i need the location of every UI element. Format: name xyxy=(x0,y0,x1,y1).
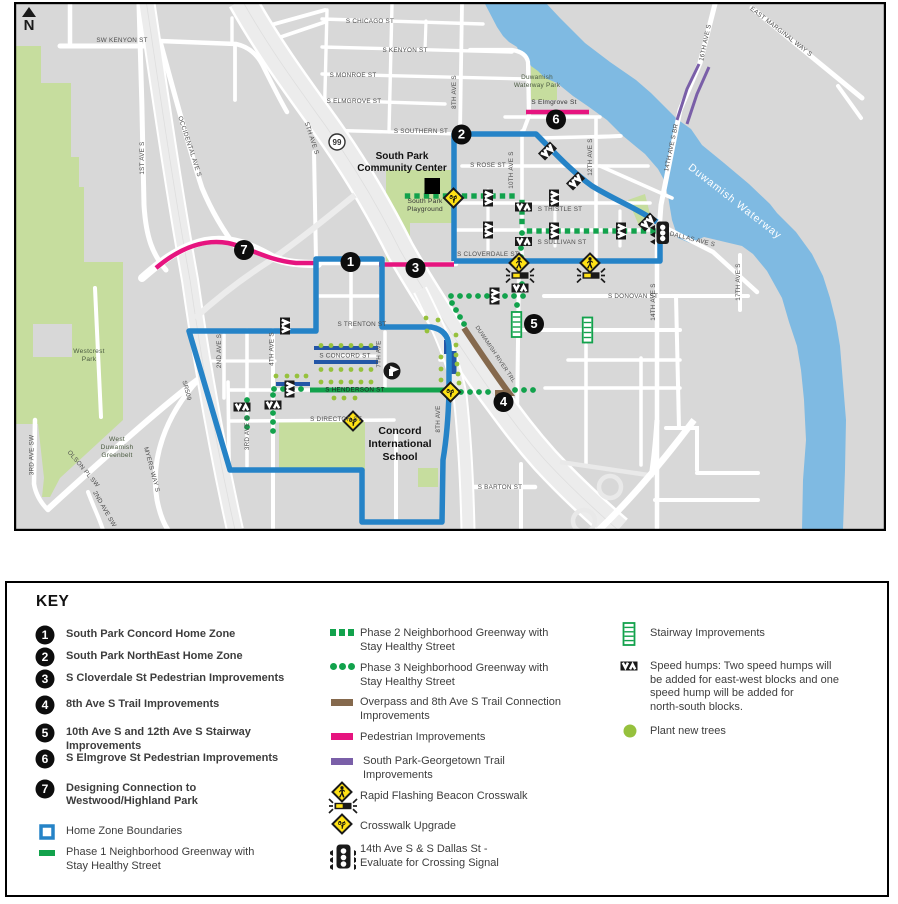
svg-text:3: 3 xyxy=(412,260,419,275)
svg-text:Duwamish: Duwamish xyxy=(521,74,553,81)
svg-text:S TRENTON ST: S TRENTON ST xyxy=(338,321,387,328)
svg-text:S KENYON ST: S KENYON ST xyxy=(382,47,427,54)
svg-text:1: 1 xyxy=(347,254,354,269)
svg-text:6: 6 xyxy=(42,752,49,766)
svg-text:5: 5 xyxy=(42,726,49,740)
svg-text:SW KENYON ST: SW KENYON ST xyxy=(96,37,147,44)
svg-text:3RD AVE S: 3RD AVE S xyxy=(244,416,251,450)
svg-text:S HENDERSON ST: S HENDERSON ST xyxy=(325,387,384,394)
svg-text:Playground: Playground xyxy=(407,206,443,213)
svg-text:South Park: South Park xyxy=(376,151,429,162)
svg-text:4: 4 xyxy=(42,698,49,712)
svg-text:S CLOVERDALE ST: S CLOVERDALE ST xyxy=(457,251,519,258)
svg-text:Park: Park xyxy=(82,356,97,363)
svg-text:Greenbelt: Greenbelt xyxy=(101,452,132,459)
svg-text:S Elmgrove St: S Elmgrove St xyxy=(531,99,576,106)
svg-text:14TH AVE S: 14TH AVE S xyxy=(650,283,657,320)
svg-text:S BARTON ST: S BARTON ST xyxy=(478,484,523,491)
svg-text:4: 4 xyxy=(500,394,508,409)
svg-text:International: International xyxy=(368,438,431,450)
svg-text:Community Center: Community Center xyxy=(357,163,447,174)
svg-text:S CHICAGO ST: S CHICAGO ST xyxy=(346,18,394,25)
svg-text:S CONCORD ST: S CONCORD ST xyxy=(319,353,370,360)
svg-text:8TH AVE S: 8TH AVE S xyxy=(451,75,458,109)
svg-text:99: 99 xyxy=(333,138,342,147)
svg-text:Concord: Concord xyxy=(378,425,421,437)
svg-text:10TH AVE S: 10TH AVE S xyxy=(508,151,515,188)
svg-text:3RD AVE SW: 3RD AVE SW xyxy=(29,435,36,476)
svg-text:Duwamish: Duwamish xyxy=(101,444,134,451)
svg-text:7: 7 xyxy=(240,242,247,257)
svg-text:8TH AVE: 8TH AVE xyxy=(435,405,442,432)
svg-text:S THISTLE ST: S THISTLE ST xyxy=(538,206,583,213)
svg-text:5: 5 xyxy=(530,316,537,331)
svg-text:4TH AVE S: 4TH AVE S xyxy=(269,332,276,366)
svg-text:17TH AVE S: 17TH AVE S xyxy=(735,263,742,300)
svg-text:S SOUTHERN ST: S SOUTHERN ST xyxy=(394,128,448,135)
svg-text:S SULLIVAN ST: S SULLIVAN ST xyxy=(538,239,587,246)
svg-text:S DIRECTOR ST: S DIRECTOR ST xyxy=(310,416,362,423)
svg-text:1: 1 xyxy=(42,628,49,642)
svg-text:S ROSE ST: S ROSE ST xyxy=(470,162,506,169)
svg-text:Westcrest: Westcrest xyxy=(73,348,104,355)
svg-text:South Park: South Park xyxy=(407,198,443,205)
svg-text:2: 2 xyxy=(458,127,465,142)
svg-text:6: 6 xyxy=(552,112,559,127)
svg-text:7TH AVE: 7TH AVE xyxy=(376,340,383,367)
svg-text:1ST AVE S: 1ST AVE S xyxy=(139,141,146,174)
svg-text:N: N xyxy=(24,17,35,34)
svg-text:West: West xyxy=(109,436,125,443)
svg-text:3: 3 xyxy=(42,672,49,686)
svg-text:2ND AVE S: 2ND AVE S xyxy=(216,334,223,368)
svg-text:School: School xyxy=(382,451,417,463)
svg-text:2: 2 xyxy=(42,650,49,664)
svg-text:S ELMGROVE ST: S ELMGROVE ST xyxy=(327,98,382,105)
svg-text:7: 7 xyxy=(42,782,49,796)
svg-text:12TH AVE S: 12TH AVE S xyxy=(587,138,594,175)
svg-text:Waterway Park: Waterway Park xyxy=(514,82,561,89)
svg-text:S MONROE ST: S MONROE ST xyxy=(330,72,377,79)
